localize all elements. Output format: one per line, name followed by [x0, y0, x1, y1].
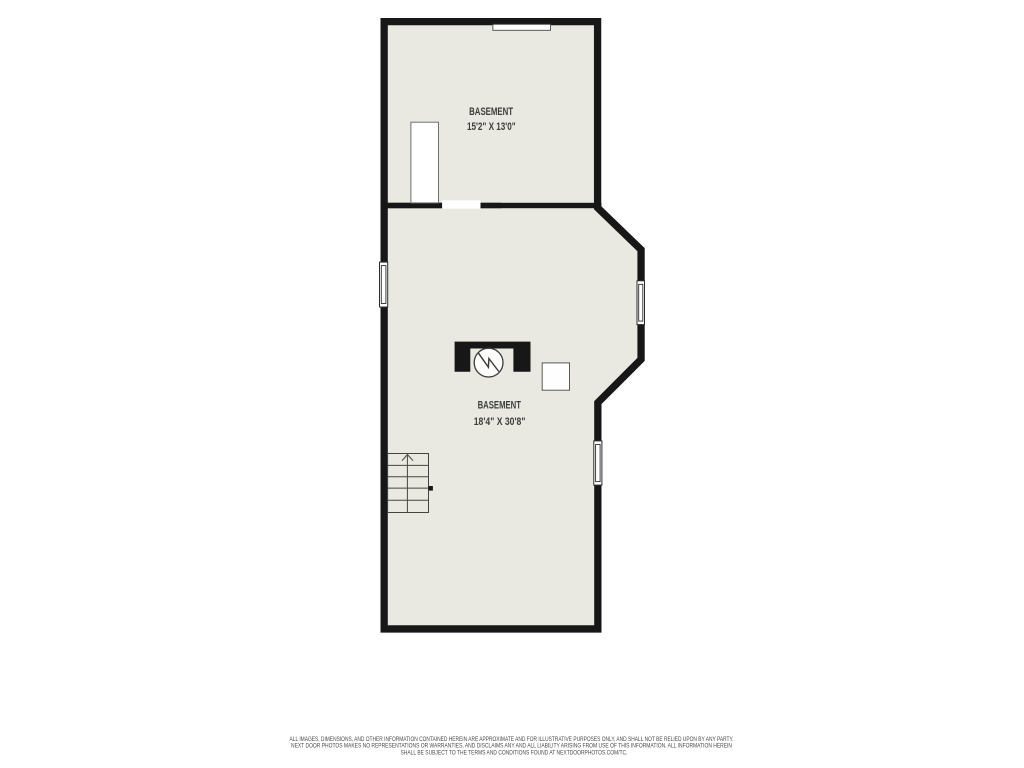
svg-text:15'2" X 13'0": 15'2" X 13'0": [467, 121, 516, 133]
svg-text:BASEMENT: BASEMENT: [478, 400, 521, 412]
svg-text:18'4" X 30'8": 18'4" X 30'8": [474, 416, 526, 428]
svg-text:BASEMENT: BASEMENT: [469, 106, 513, 118]
svg-text:SHALL BE SUBJECT TO THE TERMS: SHALL BE SUBJECT TO THE TERMS AND CONDIT…: [401, 749, 628, 756]
